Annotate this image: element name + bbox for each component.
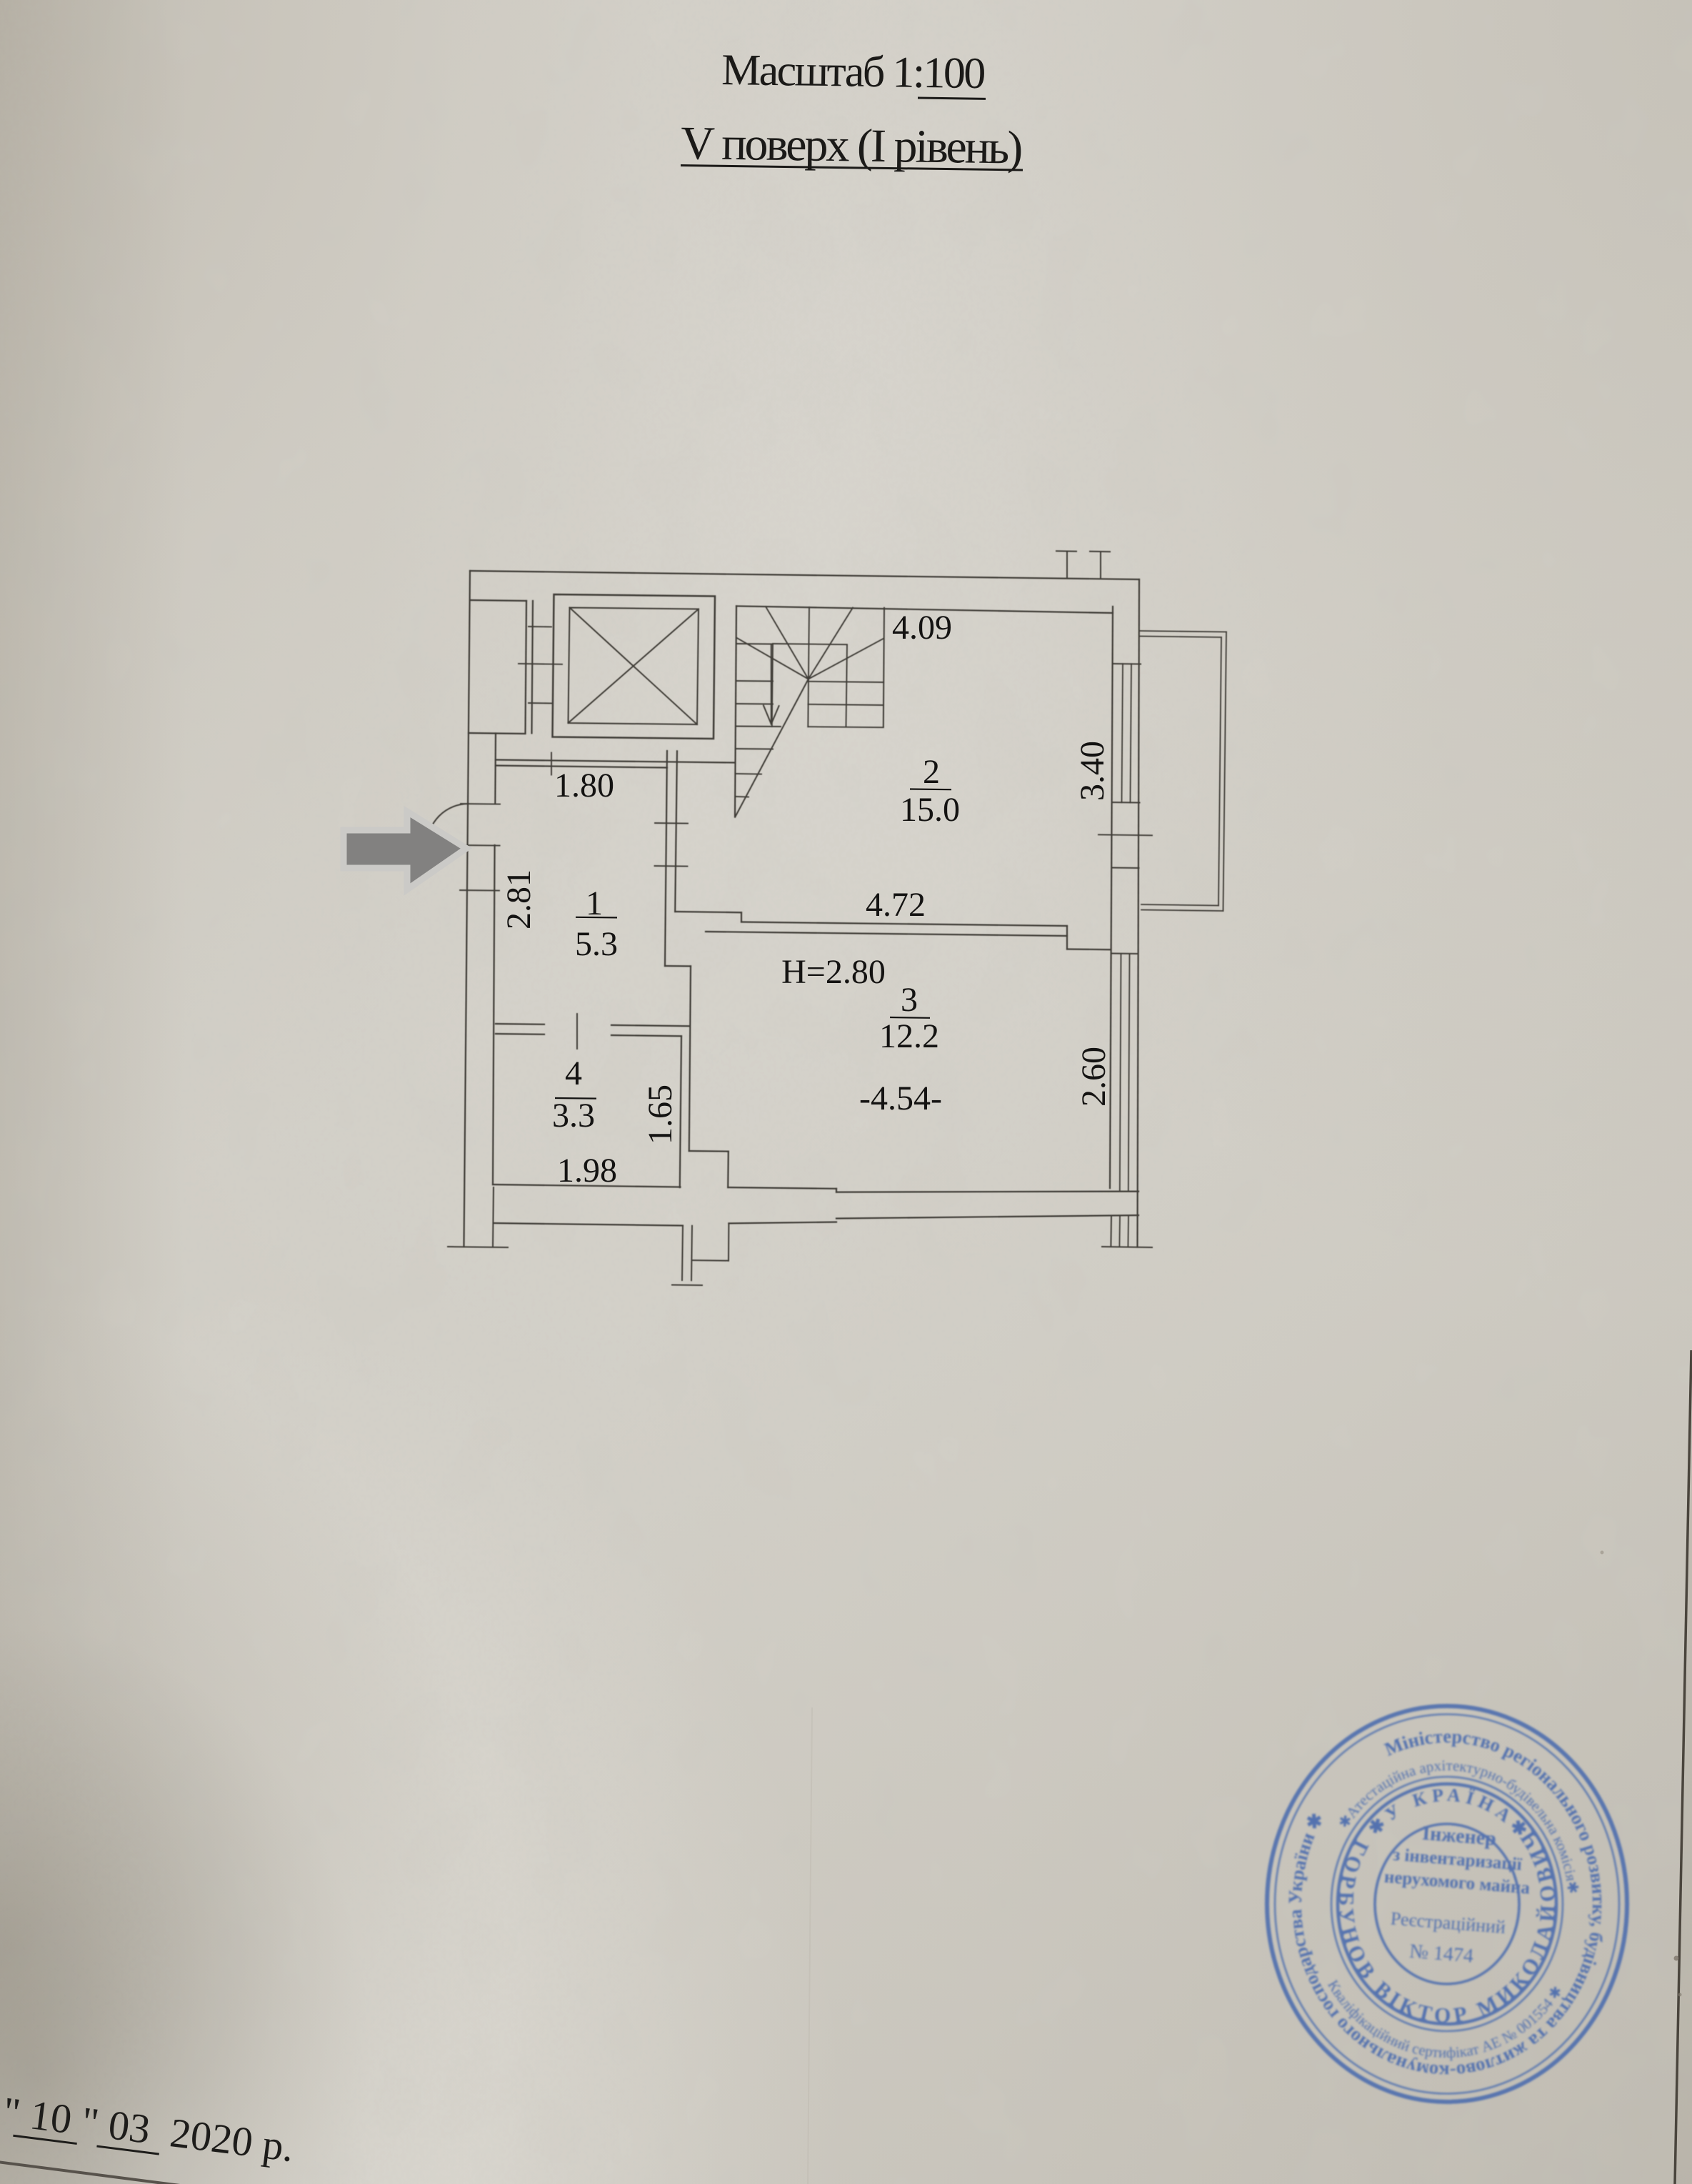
svg-text:4.09: 4.09 [892,609,952,647]
svg-text:3.40: 3.40 [1073,741,1111,801]
svg-text:12.2: 12.2 [879,1017,939,1055]
svg-text:-4.54-: -4.54- [859,1079,942,1117]
svg-text:1.65: 1.65 [641,1084,679,1145]
svg-text:2: 2 [923,753,940,791]
svg-text:H=2.80: H=2.80 [781,953,886,991]
svg-text:5.3: 5.3 [575,925,618,963]
svg-text:2.60: 2.60 [1075,1047,1113,1107]
svg-text:2.81: 2.81 [500,869,538,929]
svg-text:3: 3 [901,981,918,1019]
svg-text:1.80: 1.80 [554,767,614,804]
svg-text:15.0: 15.0 [900,791,960,829]
svg-text:Масштаб 1:100: Масштаб 1:100 [721,46,986,98]
svg-text:4: 4 [565,1054,582,1092]
svg-text:3.3: 3.3 [552,1097,595,1135]
svg-text:1.98: 1.98 [557,1152,617,1190]
svg-text:4.72: 4.72 [866,886,926,924]
